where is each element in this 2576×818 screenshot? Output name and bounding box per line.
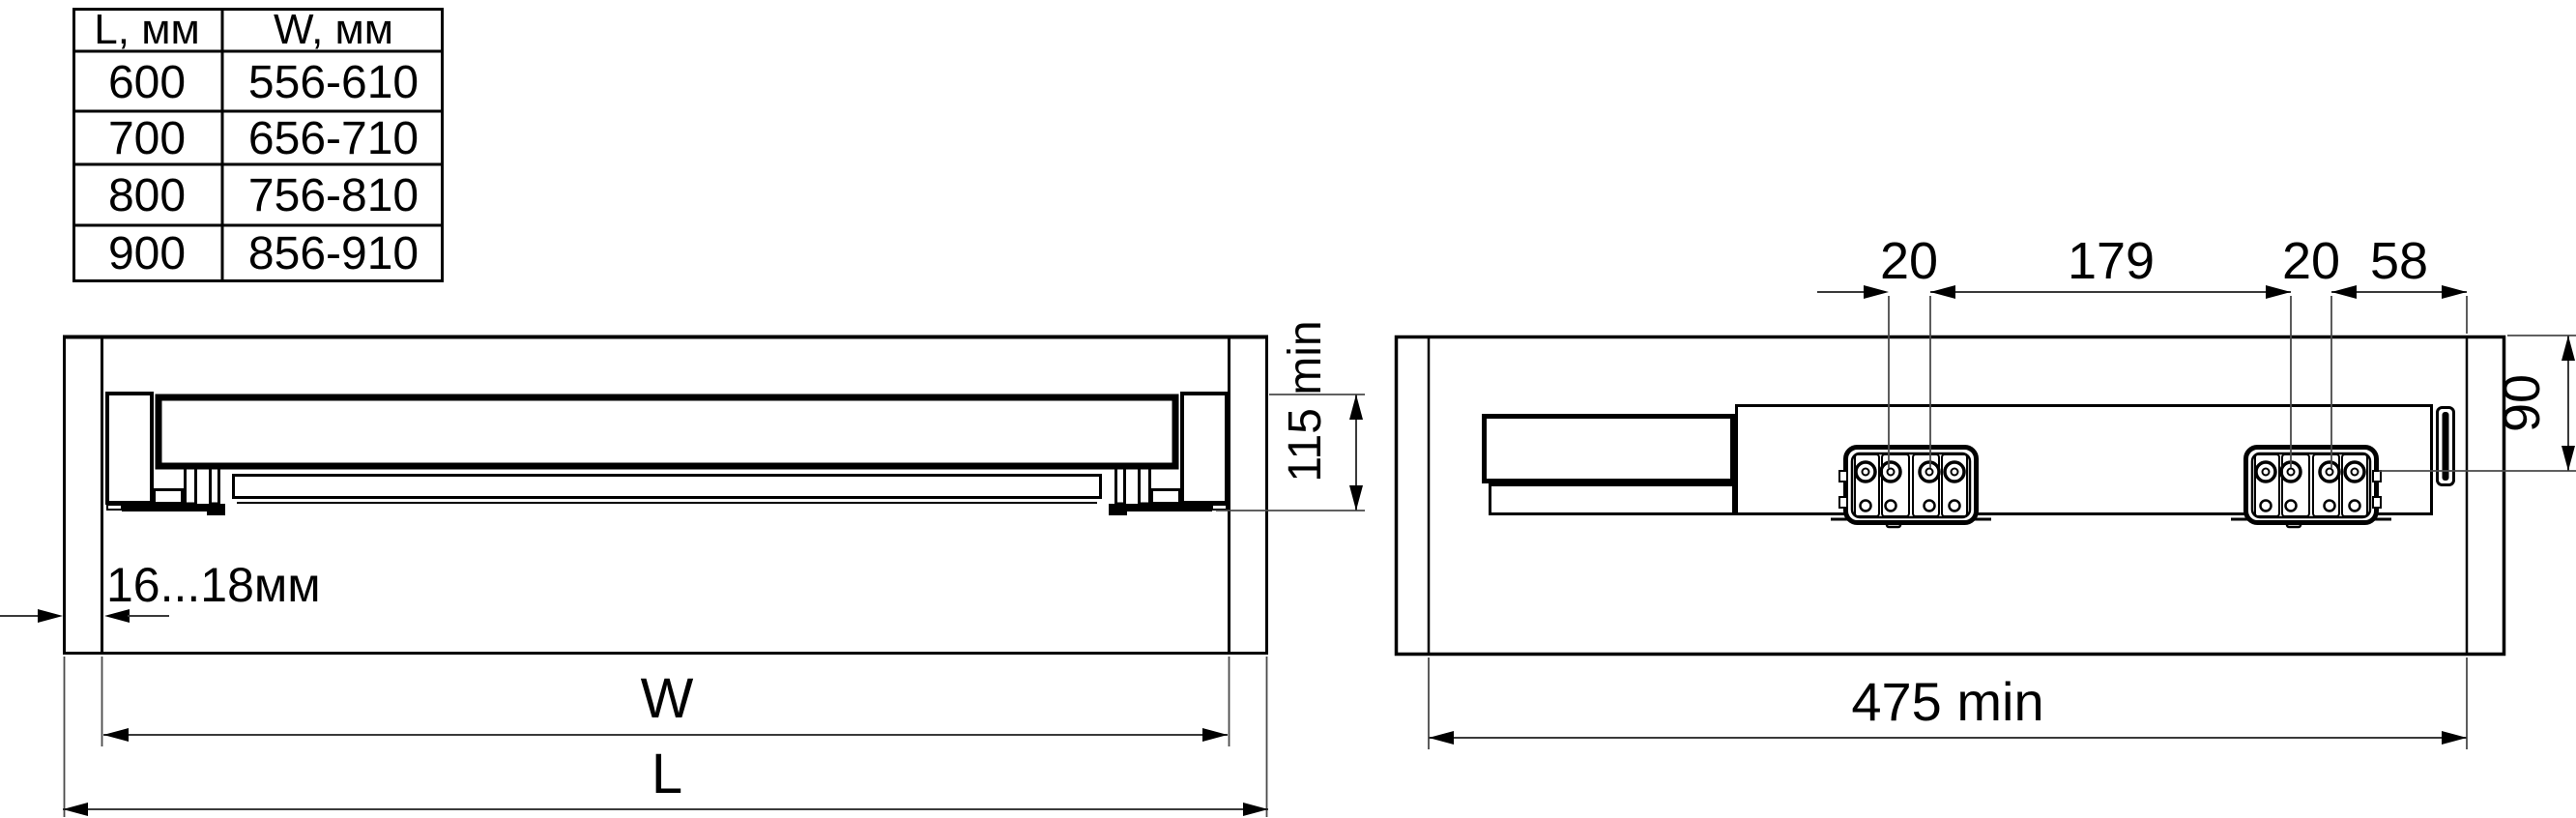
drawer-left-side-member	[107, 394, 152, 503]
foot-step	[1152, 490, 1180, 504]
arrow-right-icon	[1202, 728, 1228, 742]
dim-20-rear-label: 20	[2282, 232, 2340, 290]
size-table-header-width: W, мм	[274, 6, 393, 53]
arrow-down-icon	[1349, 485, 1363, 511]
foot-tab	[186, 468, 196, 504]
table-cell: 656-710	[248, 113, 419, 164]
arrow-down-icon	[2562, 446, 2575, 471]
rear-mounting-bracket	[1839, 448, 1977, 523]
table-cell: 556-610	[248, 57, 419, 108]
foot-tab	[211, 468, 219, 504]
table-cell: 856-910	[248, 228, 419, 279]
arrow-right-icon	[1243, 803, 1268, 816]
size-table-header-length: L, мм	[94, 6, 199, 53]
front-mounting-bracket	[2246, 448, 2382, 523]
front-view-drawing: 16...18мм 115 min W L	[0, 320, 1365, 817]
inner-width-label: W	[641, 667, 694, 730]
foot-lip	[207, 511, 225, 515]
panel-thickness-dimension: 16...18мм	[0, 558, 321, 623]
dim-179-label: 179	[2068, 232, 2155, 290]
min-depth-label: 475 min	[1851, 671, 2043, 732]
foot-step	[155, 490, 183, 504]
foot-notch	[1212, 505, 1227, 510]
drawer-right-side-member	[1182, 394, 1227, 503]
foot-tab	[1140, 468, 1150, 504]
bracket-edge-notch	[1839, 497, 1847, 508]
arrow-left-icon	[103, 728, 129, 742]
arrow-right-icon	[2442, 731, 2467, 745]
slide-rear-lower-rail	[1491, 485, 1734, 514]
arrow-left-icon	[1429, 731, 1454, 745]
table-cell: 800	[108, 170, 186, 221]
bracket-edge-notch	[2373, 471, 2381, 482]
table-cell: 900	[108, 228, 186, 279]
arrow-right-icon	[38, 609, 63, 623]
dim-90-label: 90	[2493, 374, 2551, 432]
min-height-label: 115 min	[1280, 320, 1331, 482]
drawer-bottom-panel	[159, 397, 1175, 466]
drawer-slide-installation-diagram: L, мм W, мм 600 556-610 700 656-710 800 …	[0, 0, 2576, 818]
outer-length-label: L	[651, 743, 682, 805]
dim-58-label: 58	[2370, 232, 2428, 290]
technical-drawing-page: L, мм W, мм 600 556-610 700 656-710 800 …	[0, 0, 2576, 818]
bracket-edge-notch	[2373, 497, 2381, 508]
foot-bar	[122, 504, 225, 511]
arrow-up-icon	[1349, 394, 1363, 420]
slide-rear-rail	[1485, 417, 1733, 482]
foot-notch	[107, 505, 122, 510]
arrow-up-icon	[2562, 336, 2575, 361]
foot-bar	[1109, 504, 1212, 511]
min-height-dimension: 115 min	[1216, 320, 1365, 511]
dim-20-front-label: 20	[1880, 232, 1938, 290]
arrow-right-icon	[2442, 285, 2467, 299]
min-depth-dimension: 475 min	[1429, 657, 2467, 749]
table-cell: 756-810	[248, 170, 419, 221]
inner-width-dimension: W	[102, 657, 1230, 746]
side-view-drawing: 20 179 20 58 90 475 min	[1397, 232, 2576, 749]
foot-tab	[1116, 468, 1125, 504]
foot-lip	[1109, 511, 1127, 515]
table-cell: 600	[108, 57, 186, 108]
hole-position-dimensions: 20 179 20 58	[1817, 232, 2467, 468]
bracket-edge-notch	[1839, 471, 1847, 482]
top-distance-dimension: 90	[2379, 336, 2576, 471]
table-cell: 700	[108, 113, 186, 164]
slide-rail	[234, 476, 1101, 498]
arrow-left-icon	[63, 803, 88, 816]
size-table: L, мм W, мм 600 556-610 700 656-710 800 …	[72, 6, 444, 281]
panel-thickness-label: 16...18мм	[106, 558, 321, 612]
